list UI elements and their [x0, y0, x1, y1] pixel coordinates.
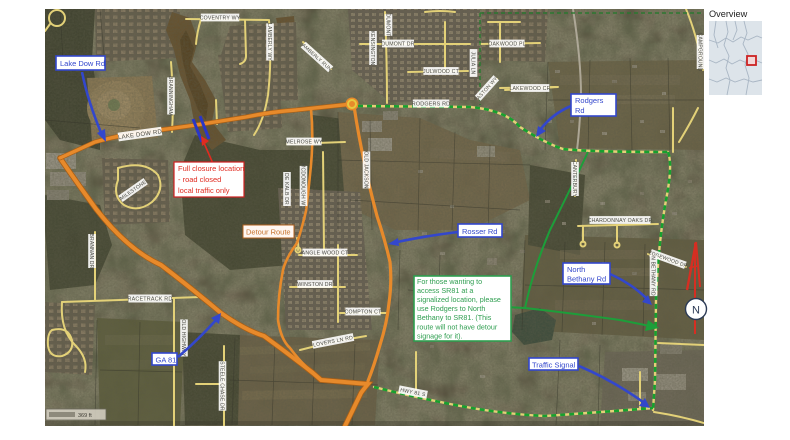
- svg-text:use Rodgers to North: use Rodgers to North: [417, 304, 485, 313]
- svg-text:Traffic Signal: Traffic Signal: [532, 361, 576, 370]
- svg-text:Rosser Rd: Rosser Rd: [462, 227, 497, 236]
- svg-text:CHARDONNAY OAKS DR: CHARDONNAY OAKS DR: [588, 218, 653, 224]
- svg-text:BRANNINGHAM: BRANNINGHAM: [167, 76, 173, 116]
- svg-text:OAKWOOD PL: OAKWOOD PL: [488, 41, 525, 47]
- svg-text:North: North: [567, 265, 585, 274]
- svg-text:N BETHANY RD: N BETHANY RD: [650, 256, 656, 296]
- svg-text:Detour Route: Detour Route: [246, 228, 291, 237]
- svg-text:WINSTON DR: WINSTON DR: [297, 282, 332, 288]
- svg-text:RACETRACK RD: RACETRACK RD: [128, 296, 173, 302]
- svg-text:Bethany Rd: Bethany Rd: [567, 275, 606, 284]
- svg-text:LAKEWOOD CR: LAKEWOOD CR: [509, 86, 550, 92]
- svg-text:JULIA LN: JULIA LN: [470, 52, 476, 75]
- svg-text:DUMONT: DUMONT: [385, 13, 391, 36]
- svg-text:COMPTON CT: COMPTON CT: [345, 309, 382, 315]
- svg-text:signalized location, please: signalized location, please: [417, 295, 501, 304]
- svg-text:DUMONT DR: DUMONT DR: [381, 41, 414, 47]
- svg-text:JULWOOD CT: JULWOOD CT: [423, 69, 460, 75]
- svg-text:Lake Dow Rd: Lake Dow Rd: [60, 59, 105, 68]
- svg-text:Full closure location: Full closure location: [178, 164, 244, 173]
- svg-text:369 ft: 369 ft: [78, 413, 92, 419]
- svg-text:For those wanting to: For those wanting to: [417, 277, 482, 286]
- svg-text:GA 81: GA 81: [156, 356, 177, 365]
- svg-text:local traffic only: local traffic only: [178, 186, 230, 195]
- svg-text:STEELE CHASE DR: STEELE CHASE DR: [219, 361, 225, 411]
- svg-text:Bethany to SR81. (This: Bethany to SR81. (This: [417, 313, 492, 322]
- svg-text:BRANNAN DR: BRANNAN DR: [88, 233, 94, 268]
- svg-text:ANGLE WOOD CT: ANGLE WOOD CT: [302, 250, 349, 256]
- svg-text:Rd: Rd: [575, 106, 585, 115]
- svg-text:RODGERS RD: RODGERS RD: [412, 101, 451, 107]
- svg-text:MELROSE WY: MELROSE WY: [285, 139, 323, 145]
- svg-text:CANTERBURY: CANTERBURY: [571, 161, 577, 198]
- svg-text:MCDONOUGH WY: MCDONOUGH WY: [300, 163, 306, 209]
- svg-text:- road closed: - road closed: [178, 175, 221, 184]
- svg-text:signage for it).: signage for it).: [417, 331, 463, 340]
- svg-text:COVENTRY WY: COVENTRY WY: [200, 15, 241, 21]
- svg-text:N: N: [692, 305, 700, 317]
- svg-text:LAMBERLY WY: LAMBERLY WY: [266, 23, 272, 61]
- svg-text:route will not have detour: route will not have detour: [417, 322, 498, 331]
- svg-text:CAMPGROUND: CAMPGROUND: [697, 33, 703, 72]
- svg-text:access SR81 at a: access SR81 at a: [417, 286, 473, 295]
- svg-text:Rodgers: Rodgers: [575, 96, 604, 105]
- svg-text:KENSINGTON: KENSINGTON: [369, 31, 375, 66]
- svg-text:DE KALB DR: DE KALB DR: [283, 173, 289, 205]
- svg-text:Overview: Overview: [709, 9, 748, 19]
- svg-text:OLD JACKSON: OLD JACKSON: [363, 151, 369, 189]
